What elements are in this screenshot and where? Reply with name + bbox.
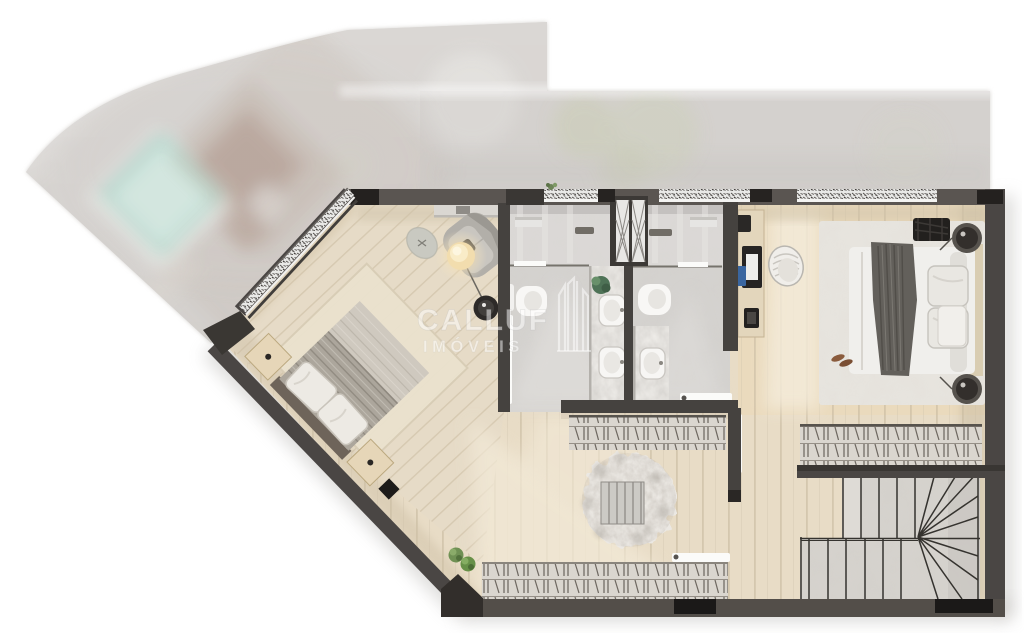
svg-text:IMÓVEIS: IMÓVEIS xyxy=(423,337,524,356)
svg-text:CALLUF: CALLUF xyxy=(417,304,549,337)
